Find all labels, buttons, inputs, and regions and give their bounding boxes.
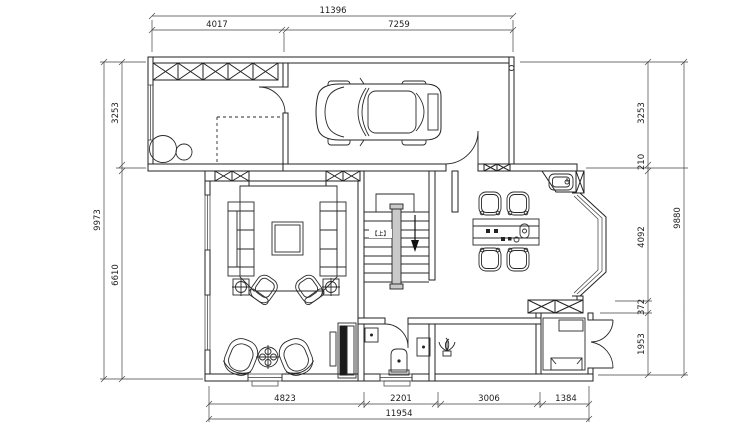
- stair-rail: [390, 204, 403, 289]
- bathroom: [365, 328, 430, 375]
- sofa-left: [228, 202, 254, 276]
- barrel-chair-left: [220, 335, 261, 380]
- entry-closet: [543, 318, 585, 370]
- hatched-wall-living-right: [326, 171, 360, 181]
- hatched-wall-garage: [484, 164, 510, 171]
- laundry-room: [150, 117, 284, 164]
- dining-chair: [479, 192, 501, 215]
- toilet-icon: [389, 349, 409, 375]
- entrance-foyer: [439, 318, 585, 370]
- round-table: [256, 345, 280, 369]
- coffee-table: [272, 222, 303, 255]
- armchair-right: [293, 272, 326, 306]
- dim-label-top-seg1: 4017: [206, 20, 228, 30]
- plant-icon: [439, 338, 455, 356]
- lamp-cross-icon: [232, 278, 250, 296]
- dim-label-right-seg2: 210: [637, 154, 647, 170]
- dim-label-bottom-total: 11954: [385, 409, 412, 419]
- dining-chair: [507, 192, 529, 215]
- hatched-wall-kitchen: [576, 171, 584, 193]
- dining-chair: [479, 248, 501, 271]
- staircase: 【上】: [364, 194, 429, 289]
- hatched-wall-laundry: [153, 63, 278, 80]
- dimensions-right: 3253 210 4092 372 1953 9880: [520, 59, 688, 378]
- entrance-double-door: [591, 320, 613, 368]
- door-bathroom: [385, 324, 408, 348]
- cabinet-piano: [330, 323, 356, 378]
- dining-chair: [507, 248, 529, 271]
- kitchen-counter: [542, 171, 576, 192]
- dining-room: [473, 171, 576, 271]
- dim-label-right-seg1: 3253: [637, 102, 647, 124]
- floor-plan-canvas: 【上】: [0, 0, 740, 432]
- dim-label-right-total: 9880: [673, 207, 683, 229]
- sofa-right: [320, 202, 346, 276]
- side-table-lamp-left: [232, 278, 250, 296]
- stair-up-label: 【上】: [371, 230, 389, 238]
- hatched-wall-living-left: [215, 171, 249, 181]
- bath-sink-icon: [365, 328, 378, 342]
- dining-table: [473, 219, 539, 245]
- dim-label-left-total: 9973: [93, 209, 103, 231]
- hatched-wall-entrance: [528, 300, 583, 313]
- barrel-chair-right: [275, 335, 316, 380]
- car-top-view-icon: [316, 66, 514, 147]
- dim-label-right-seg4: 372: [637, 299, 647, 315]
- living-room: [220, 186, 356, 379]
- dim-label-top-total: 11396: [319, 6, 346, 16]
- dim-label-left-seg2: 6610: [111, 264, 121, 286]
- dim-label-right-seg3: 4092: [637, 226, 647, 248]
- dim-label-right-seg5: 1953: [637, 333, 647, 355]
- dim-label-bottom-seg2: 2201: [390, 394, 412, 404]
- dim-label-bottom-seg4: 1384: [555, 394, 577, 404]
- door-garage: [446, 131, 478, 164]
- washbasin-icon: [417, 338, 430, 356]
- door-laundry: [259, 87, 285, 113]
- dim-label-top-seg2: 7259: [388, 20, 410, 30]
- bay-window: [572, 193, 606, 296]
- dim-label-bottom-seg3: 3006: [478, 394, 500, 404]
- dim-label-left-seg1: 3253: [111, 102, 121, 124]
- double-basin-icon: [150, 136, 193, 163]
- dim-label-bottom-seg1: 4823: [274, 394, 296, 404]
- dimensions-top: 11396 4017 7259: [149, 6, 516, 52]
- dimensions-bottom: 4823 2201 3006 1384 11954: [206, 386, 592, 422]
- armchair-left: [248, 272, 281, 306]
